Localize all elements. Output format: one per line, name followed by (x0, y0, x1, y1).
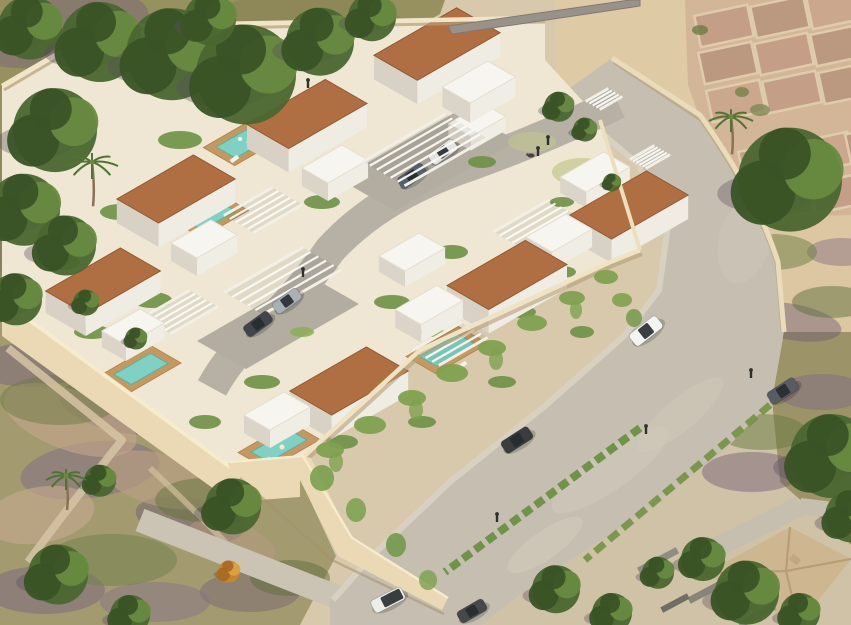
wall-vine (386, 533, 406, 557)
hedge-light (290, 327, 314, 337)
wall-vine-droop (329, 452, 343, 472)
hedge (189, 415, 221, 429)
hedge (158, 131, 202, 149)
wall-vine-droop (626, 309, 642, 327)
wall-vine (346, 498, 366, 522)
hedge (570, 326, 594, 338)
hedge (488, 376, 516, 388)
wall-vine (612, 293, 632, 307)
wall-vine (419, 570, 437, 590)
wall-vine (436, 364, 468, 382)
wall-vine (559, 291, 585, 305)
weed-patch (750, 104, 770, 116)
hedge (468, 156, 496, 168)
wall-vine-droop (570, 301, 582, 319)
wall-vine-droop (489, 350, 503, 370)
weed-patch (735, 87, 749, 97)
render-canvas (0, 0, 851, 625)
weed-patch (692, 25, 708, 35)
wall-vine (517, 315, 547, 331)
wall-vine-droop (409, 400, 423, 420)
wall-vine (310, 465, 334, 491)
wall-vine (594, 270, 618, 284)
wall-vine (354, 416, 386, 434)
hedge (244, 375, 280, 389)
architectural-aerial-render (0, 0, 851, 625)
